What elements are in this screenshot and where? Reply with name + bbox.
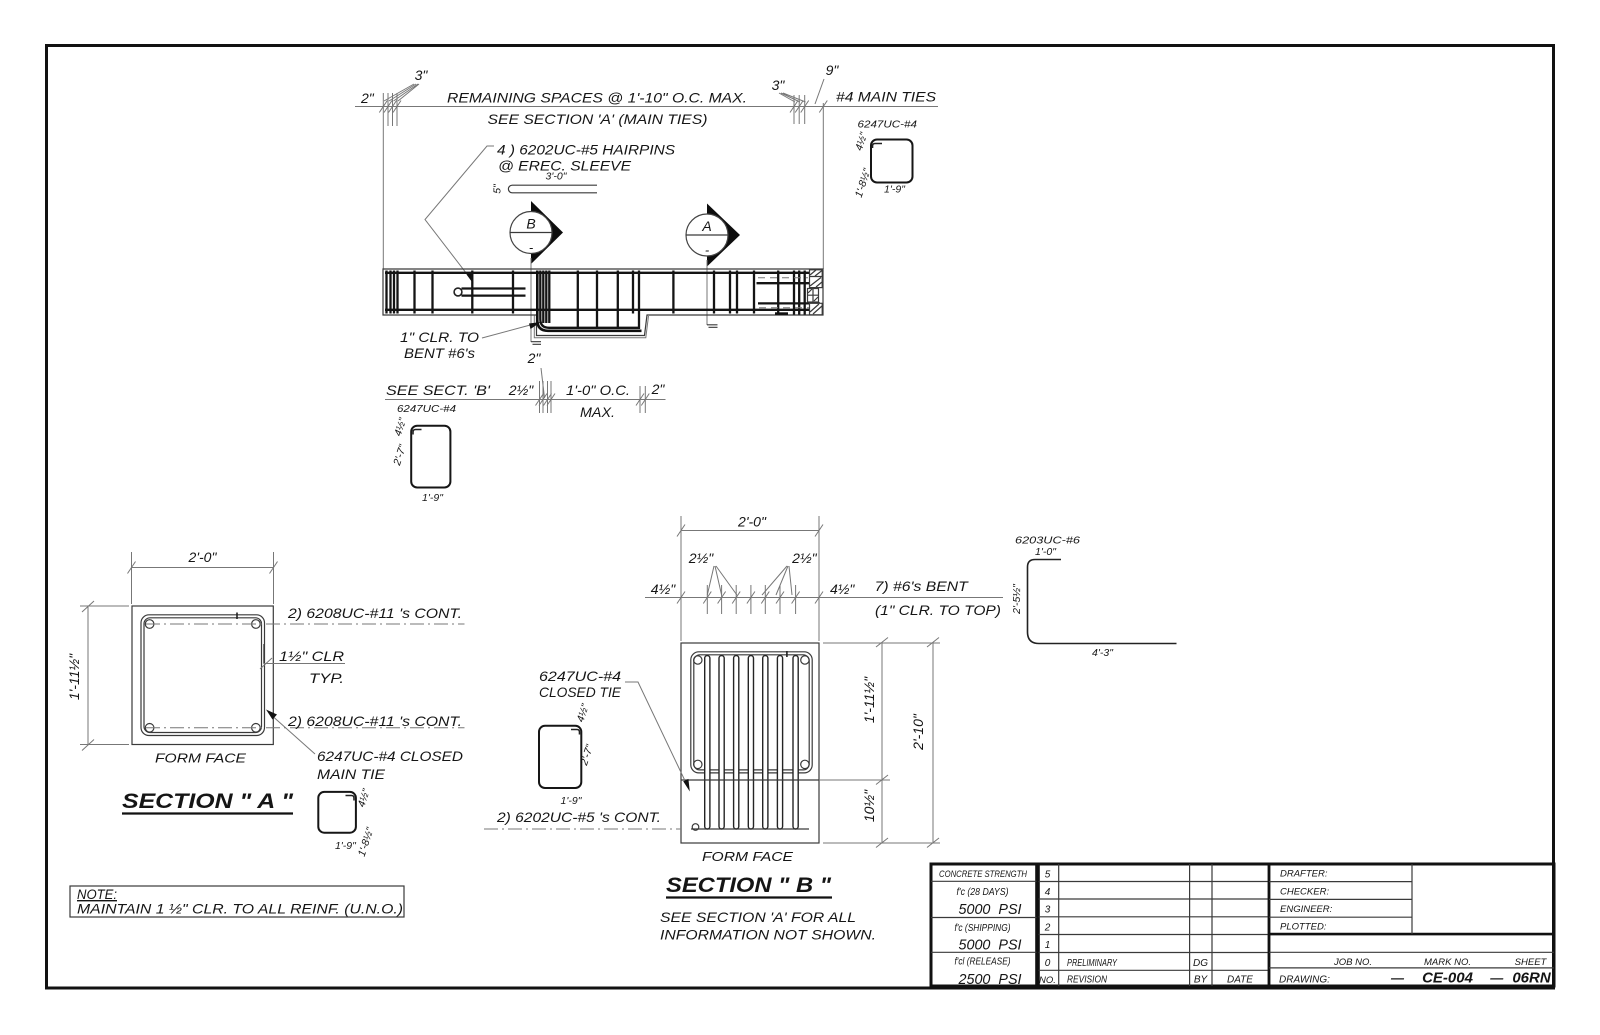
svg-text:2½": 2½" (508, 382, 534, 398)
svg-text:0: 0 (1045, 958, 1051, 969)
svg-text:MAIN TIE: MAIN TIE (317, 766, 386, 782)
svg-text:1'-0" O.C.: 1'-0" O.C. (566, 382, 630, 398)
svg-text:-: - (705, 243, 710, 258)
svg-text:SECTION " A ": SECTION " A " (122, 790, 294, 813)
svg-text:INFORMATION NOT SHOWN.: INFORMATION NOT SHOWN. (660, 927, 876, 943)
svg-text:2": 2" (651, 381, 666, 397)
svg-text:1'-11½": 1'-11½" (861, 676, 877, 723)
svg-text:DRAWING:: DRAWING: (1279, 975, 1330, 986)
svg-text:4½": 4½" (651, 581, 676, 597)
svg-text:1½" CLR: 1½" CLR (279, 648, 344, 664)
svg-text:1'-9": 1'-9" (335, 840, 357, 852)
svg-text:1" CLR. TO: 1" CLR. TO (400, 329, 479, 345)
svg-text:6247UC-#4 CLOSED: 6247UC-#4 CLOSED (317, 748, 463, 764)
svg-text:(1" CLR. TO TOP): (1" CLR. TO TOP) (875, 602, 1001, 618)
svg-text:1'-9": 1'-9" (422, 492, 444, 504)
svg-text:DRAFTER:: DRAFTER: (1280, 869, 1328, 880)
svg-text:2'-0": 2'-0" (188, 549, 218, 565)
svg-text:f'c (28 DAYS): f'c (28 DAYS) (957, 887, 1009, 898)
svg-text:A: A (701, 218, 711, 234)
svg-text:2: 2 (1044, 922, 1051, 933)
svg-text:3: 3 (1045, 905, 1051, 916)
svg-text:2) 6208UC-#11 's CONT.: 2) 6208UC-#11 's CONT. (287, 713, 462, 729)
svg-text:B: B (526, 216, 535, 232)
svg-text:MAINTAIN 1 ½" CLR. TO ALL REIN: MAINTAIN 1 ½" CLR. TO ALL REINF. (U.N.O.… (77, 901, 403, 917)
svg-text:1: 1 (1045, 940, 1051, 951)
svg-text:FORM FACE: FORM FACE (155, 751, 246, 766)
svg-text:2'-0": 2'-0" (737, 514, 767, 530)
svg-text:5": 5" (492, 183, 504, 194)
svg-text:1'-9": 1'-9" (884, 184, 906, 196)
svg-text:ENGINEER:: ENGINEER: (1280, 904, 1333, 915)
svg-text:06RN: 06RN (1512, 970, 1552, 987)
svg-text:3": 3" (415, 67, 429, 83)
svg-text:DATE: DATE (1227, 975, 1253, 986)
svg-text:2'-10": 2'-10" (910, 713, 926, 751)
svg-text:DG: DG (1193, 958, 1208, 969)
svg-text:2½": 2½" (688, 550, 714, 566)
svg-text:CHECKER:: CHECKER: (1280, 886, 1329, 897)
svg-text:4 ) 6202UC-#5 HAIRPINS: 4 ) 6202UC-#5 HAIRPINS (497, 142, 676, 158)
svg-text:BENT #6's: BENT #6's (404, 345, 475, 361)
svg-text:7) #6's BENT: 7) #6's BENT (875, 578, 970, 594)
svg-text:CLOSED TIE: CLOSED TIE (539, 684, 622, 700)
svg-text:PRELIMINARY: PRELIMINARY (1067, 958, 1118, 969)
svg-text:MAX.: MAX. (580, 404, 615, 420)
svg-text:4½": 4½" (830, 581, 855, 597)
svg-text:BY: BY (1194, 975, 1209, 986)
svg-text:-: - (529, 240, 534, 255)
svg-text:REVISION: REVISION (1067, 975, 1108, 986)
svg-text:2'-5½": 2'-5½" (1011, 583, 1023, 615)
svg-text:3": 3" (772, 77, 786, 93)
svg-text:f'cl (RELEASE): f'cl (RELEASE) (955, 957, 1011, 968)
svg-text:CONCRETE STRENGTH: CONCRETE STRENGTH (939, 869, 1027, 880)
svg-text:4'-3": 4'-3" (1092, 647, 1114, 659)
svg-text:5: 5 (1045, 869, 1051, 880)
svg-text:5000 PSI: 5000 PSI (959, 937, 1022, 954)
svg-text:JOB NO.: JOB NO. (1333, 957, 1372, 968)
svg-text:6247UC-#4: 6247UC-#4 (397, 403, 456, 415)
svg-text:4: 4 (1045, 887, 1051, 898)
svg-text:REMAINING SPACES @ 1'-10" O.C.: REMAINING SPACES @ 1'-10" O.C. MAX. (447, 90, 747, 106)
svg-text:SEE SECTION 'A' (MAIN TIES): SEE SECTION 'A' (MAIN TIES) (488, 111, 708, 127)
svg-text:SEE SECT. 'B': SEE SECT. 'B' (386, 382, 492, 398)
svg-text:2) 6208UC-#11 's CONT.: 2) 6208UC-#11 's CONT. (287, 605, 462, 621)
svg-text:1'-9": 1'-9" (561, 795, 583, 807)
svg-text:10½": 10½" (861, 789, 877, 822)
svg-text:1'-11½": 1'-11½" (66, 653, 82, 700)
svg-text:CE-004: CE-004 (1422, 970, 1474, 987)
svg-text:—: — (1489, 971, 1504, 986)
svg-text:SECTION " B ": SECTION " B " (666, 874, 832, 897)
svg-text:PLOTTED:: PLOTTED: (1280, 922, 1327, 933)
svg-text:f'c (SHIPPING): f'c (SHIPPING) (955, 923, 1011, 934)
svg-text:5000 PSI: 5000 PSI (959, 901, 1022, 918)
svg-text:#4 MAIN TIES: #4 MAIN TIES (836, 89, 937, 105)
svg-text:TYP.: TYP. (309, 670, 344, 686)
svg-text:2½": 2½" (791, 550, 817, 566)
svg-text:2500 PSI: 2500 PSI (958, 971, 1022, 988)
svg-text:FORM FACE: FORM FACE (702, 849, 793, 864)
svg-text:6247UC-#4: 6247UC-#4 (539, 668, 621, 684)
svg-text:3'-0": 3'-0" (546, 171, 568, 183)
svg-text:MARK NO.: MARK NO. (1424, 957, 1471, 968)
svg-text:6247UC-#4: 6247UC-#4 (858, 119, 918, 131)
svg-text:6203UC-#6: 6203UC-#6 (1015, 535, 1080, 547)
svg-text:SHEET: SHEET (1515, 957, 1548, 968)
svg-text:9": 9" (826, 62, 840, 78)
svg-text:—: — (1390, 971, 1405, 986)
svg-text:2) 6202UC-#5 's CONT.: 2) 6202UC-#5 's CONT. (496, 809, 661, 825)
svg-text:2": 2" (527, 350, 542, 366)
svg-text:1'-0": 1'-0" (1035, 546, 1057, 558)
svg-text:SEE SECTION 'A' FOR ALL: SEE SECTION 'A' FOR ALL (660, 909, 856, 925)
svg-text:NO.: NO. (1039, 975, 1056, 986)
svg-text:2": 2" (360, 90, 375, 106)
